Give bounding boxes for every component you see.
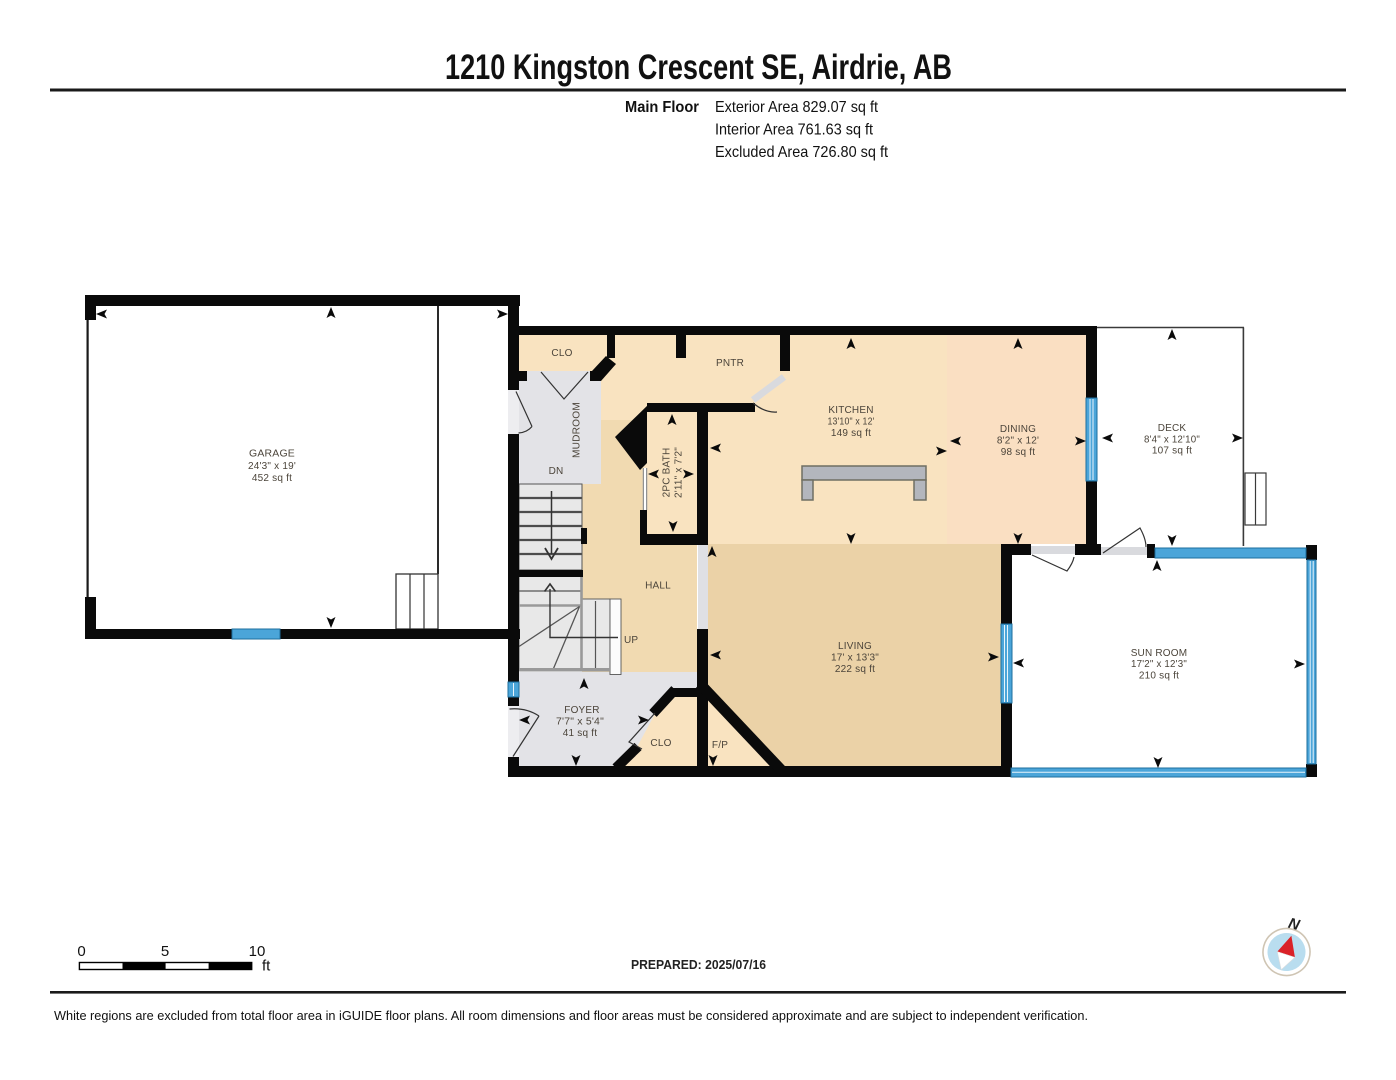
svg-text:0: 0 bbox=[77, 943, 85, 960]
svg-text:1210 Kingston Crescent SE, Air: 1210 Kingston Crescent SE, Airdrie, AB bbox=[445, 48, 952, 87]
svg-text:PNTR: PNTR bbox=[716, 358, 744, 369]
svg-text:PREPARED: 2025/07/16: PREPARED: 2025/07/16 bbox=[631, 957, 766, 972]
svg-text:SUN ROOM: SUN ROOM bbox=[1131, 648, 1188, 659]
svg-text:107 sq ft: 107 sq ft bbox=[1152, 446, 1192, 457]
svg-text:2PC BATH: 2PC BATH bbox=[662, 448, 673, 498]
svg-text:DN: DN bbox=[549, 466, 564, 477]
svg-text:FOYER: FOYER bbox=[564, 705, 599, 716]
svg-text:CLO: CLO bbox=[551, 348, 572, 359]
svg-text:149 sq ft: 149 sq ft bbox=[831, 428, 871, 439]
svg-text:98 sq ft: 98 sq ft bbox=[1001, 447, 1035, 458]
svg-text:Excluded Area 726.80 sq ft: Excluded Area 726.80 sq ft bbox=[715, 144, 888, 161]
svg-text:UP: UP bbox=[624, 635, 638, 646]
svg-text:13'10" x 12': 13'10" x 12' bbox=[828, 417, 875, 428]
svg-text:452 sq ft: 452 sq ft bbox=[252, 473, 292, 484]
svg-text:Main Floor: Main Floor bbox=[625, 99, 699, 116]
svg-text:8'4" x 12'10": 8'4" x 12'10" bbox=[1144, 435, 1200, 446]
svg-text:17' x 13'3": 17' x 13'3" bbox=[831, 653, 879, 664]
svg-text:Exterior Area 829.07 sq ft: Exterior Area 829.07 sq ft bbox=[715, 99, 879, 116]
svg-text:KITCHEN: KITCHEN bbox=[828, 405, 873, 416]
svg-text:GARAGE: GARAGE bbox=[249, 449, 295, 460]
svg-text:41 sq ft: 41 sq ft bbox=[563, 728, 597, 739]
svg-text:White regions are excluded fro: White regions are excluded from total fl… bbox=[54, 1009, 1088, 1023]
svg-text:210 sq ft: 210 sq ft bbox=[1139, 671, 1179, 682]
svg-text:2'11" x 7'2": 2'11" x 7'2" bbox=[674, 447, 685, 498]
svg-text:LIVING: LIVING bbox=[838, 641, 872, 652]
svg-text:MUDROOM: MUDROOM bbox=[572, 402, 583, 458]
svg-text:7'7" x 5'4": 7'7" x 5'4" bbox=[556, 717, 604, 728]
svg-text:CLO: CLO bbox=[650, 738, 671, 749]
svg-text:F/P: F/P bbox=[712, 740, 728, 751]
svg-text:ft: ft bbox=[262, 958, 271, 975]
svg-text:HALL: HALL bbox=[645, 581, 671, 592]
svg-text:5: 5 bbox=[161, 943, 169, 960]
svg-text:24'3" x 19': 24'3" x 19' bbox=[248, 461, 296, 472]
svg-text:DINING: DINING bbox=[1000, 424, 1036, 435]
svg-text:Interior Area 761.63 sq ft: Interior Area 761.63 sq ft bbox=[715, 122, 874, 139]
svg-text:17'2" x 12'3": 17'2" x 12'3" bbox=[1131, 659, 1187, 670]
svg-text:8'2" x 12': 8'2" x 12' bbox=[997, 436, 1039, 447]
svg-text:DECK: DECK bbox=[1158, 423, 1187, 434]
svg-text:222 sq ft: 222 sq ft bbox=[835, 664, 875, 675]
